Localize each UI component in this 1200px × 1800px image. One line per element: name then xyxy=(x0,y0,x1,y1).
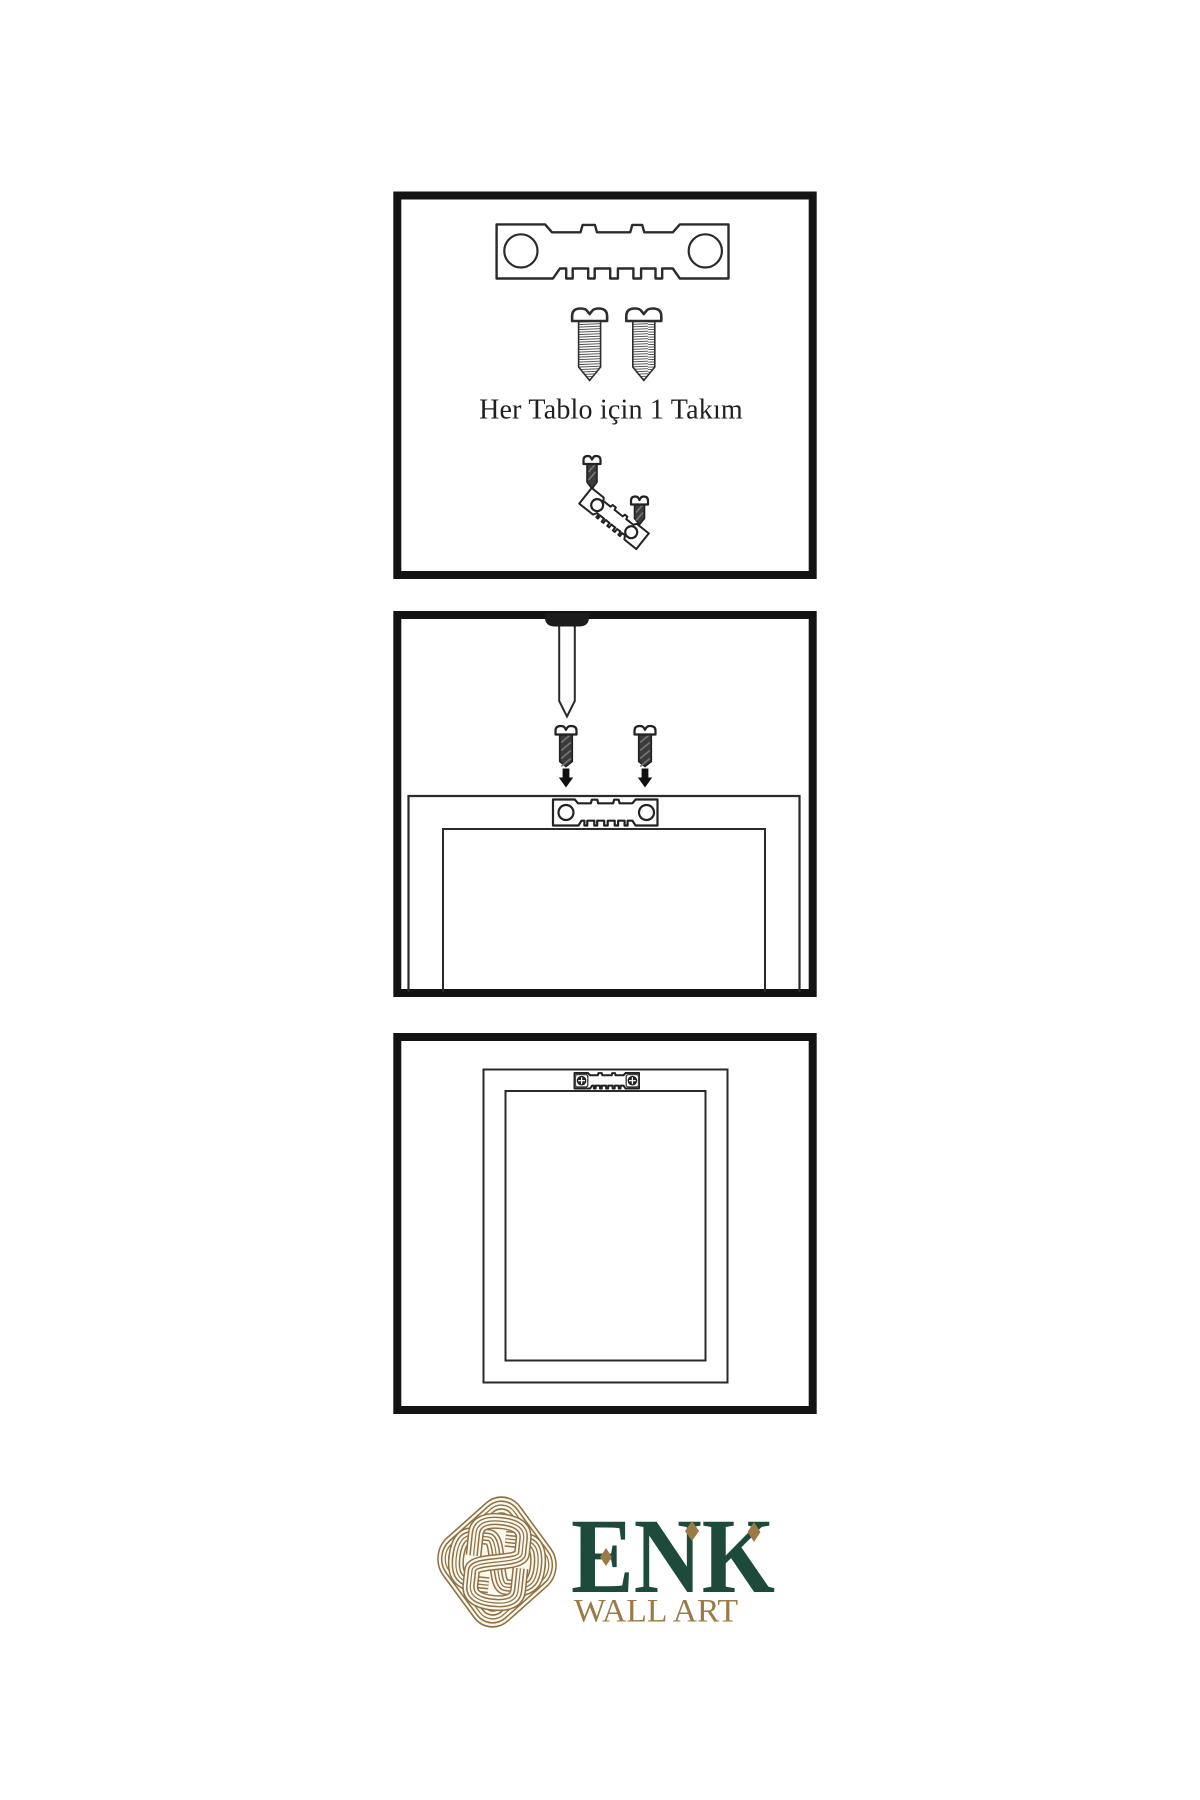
svg-text:WALL ART: WALL ART xyxy=(574,1594,738,1630)
svg-text:Her Tablo için 1 Takım: Her Tablo için 1 Takım xyxy=(479,395,743,426)
